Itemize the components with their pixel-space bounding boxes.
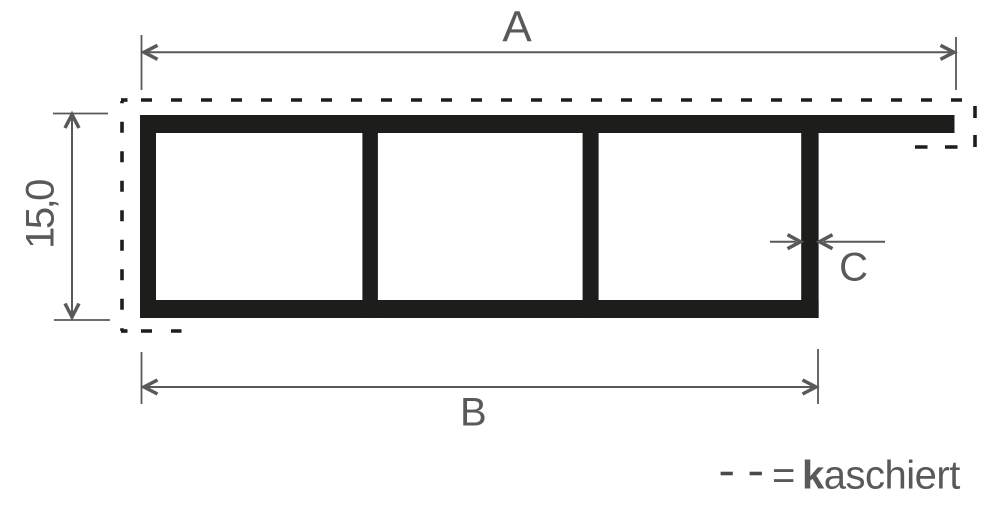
- svg-text:C: C: [839, 246, 868, 290]
- svg-text:kaschiert: kaschiert: [802, 454, 960, 498]
- svg-text:=: =: [772, 454, 795, 498]
- svg-text:A: A: [502, 3, 532, 52]
- svg-text:B: B: [460, 391, 487, 435]
- svg-text:15,0: 15,0: [19, 180, 63, 249]
